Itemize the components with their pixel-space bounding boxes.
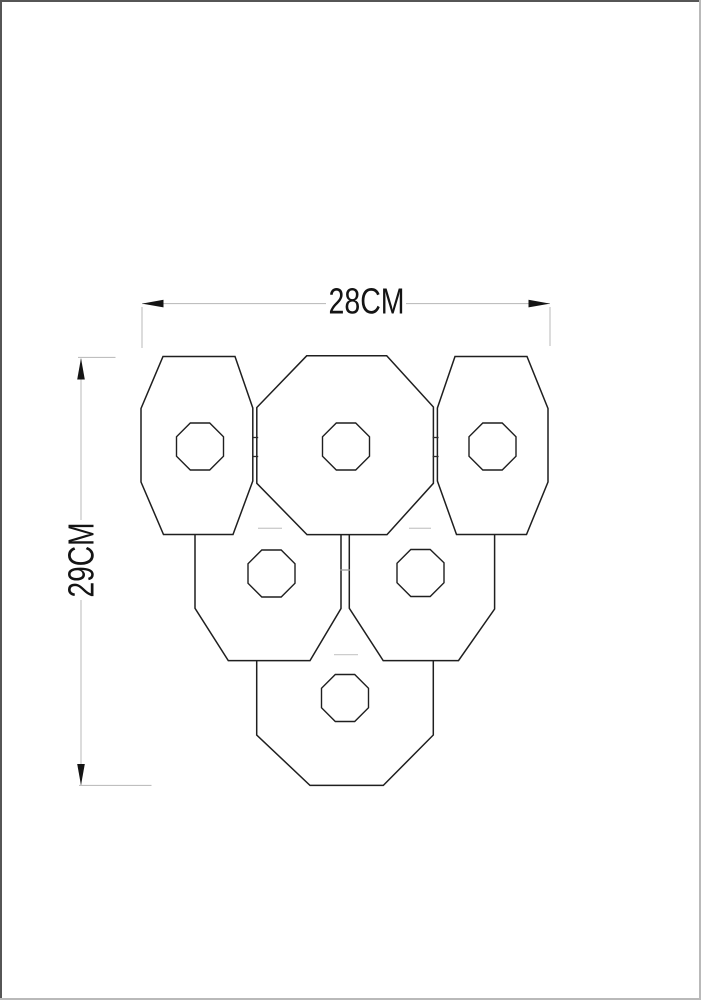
hole-middle-left [248,550,295,597]
height-dimension-label: 29CM [61,523,102,598]
hole-top-left [177,423,224,470]
hole-top-right [469,423,516,470]
hole-bottom [322,675,369,722]
hole-top-middle [323,423,370,470]
hole-middle-right [397,550,444,597]
technical-drawing: 28CM 29CM [0,0,701,1000]
width-dimension-label: 28CM [329,281,405,322]
drawing-canvas: 28CM 29CM [0,0,701,1000]
